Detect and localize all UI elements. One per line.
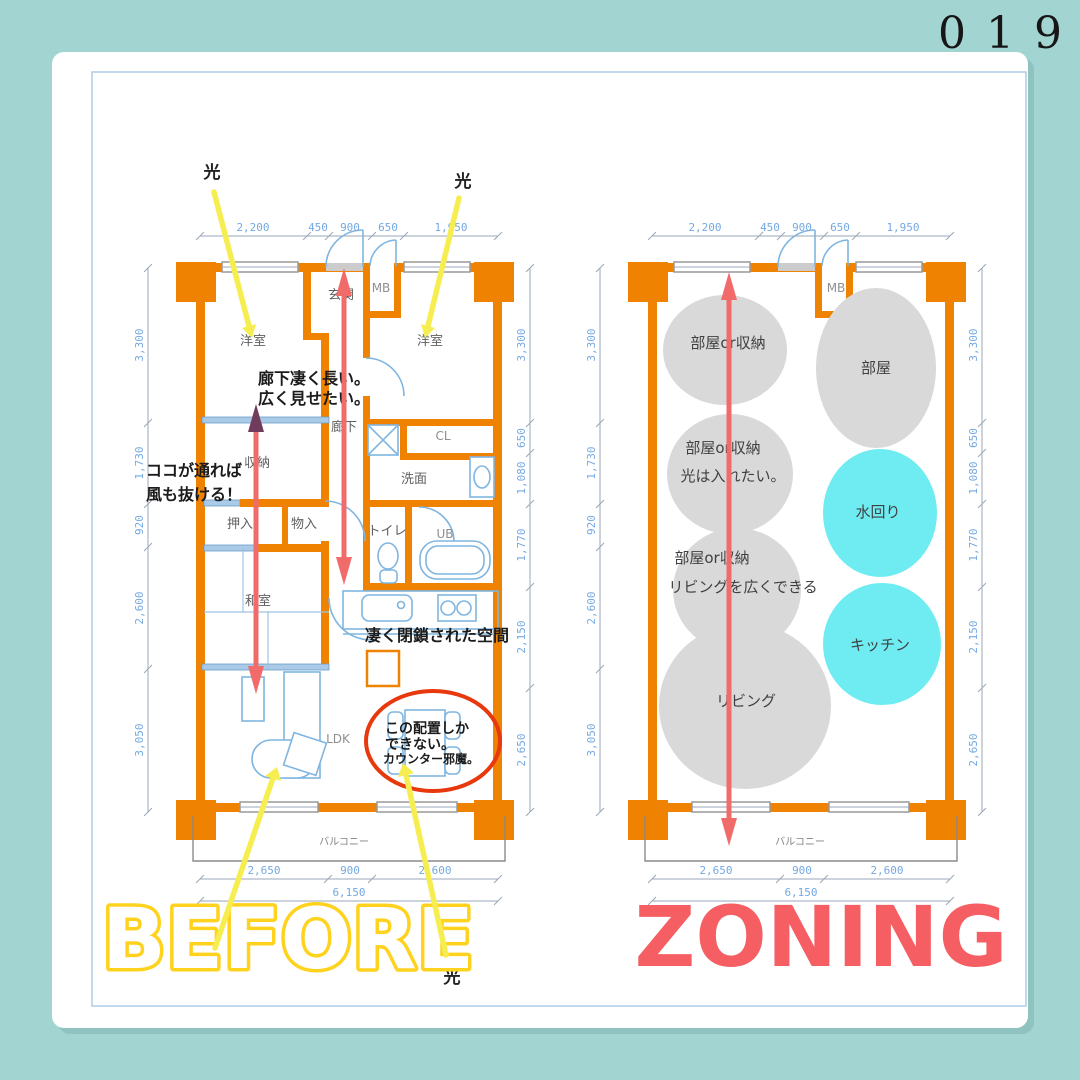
dim-label: 900 xyxy=(340,864,360,877)
dim-label: 900 xyxy=(792,864,812,877)
dim-label: 2,650 xyxy=(699,864,732,877)
dim-label: 920 xyxy=(585,515,598,535)
room-label-yoshitsu-right: 洋室 xyxy=(417,333,443,349)
dim-label: 3,300 xyxy=(585,328,598,361)
dim-label: 1,730 xyxy=(133,446,146,479)
note-layout-3: カウンター邪魔。 xyxy=(383,751,479,766)
room-label-cl: CL xyxy=(435,429,450,443)
title-before: BEFORE xyxy=(102,890,474,988)
dim-label: 2,650 xyxy=(967,733,980,766)
dim-label: 3,300 xyxy=(133,328,146,361)
dim-label: 2,650 xyxy=(515,733,528,766)
zone-label-z6: キッチン xyxy=(850,636,910,654)
note-layout-2: できない。 xyxy=(385,737,455,753)
note-layout-1: この配置しか xyxy=(385,720,469,737)
room-label-yoshitsu-left: 洋室 xyxy=(240,333,266,349)
zone-label-z3-line1: 部屋or収納 xyxy=(685,439,760,457)
room-label-mb-zoning: MB xyxy=(827,281,846,295)
dim-label: 2,200 xyxy=(688,221,721,234)
dim-label: 650 xyxy=(515,428,528,448)
dim-label: 450 xyxy=(760,221,780,234)
dim-label: 1,950 xyxy=(886,221,919,234)
zone-label-z4: 水回り xyxy=(855,503,900,521)
dim-label: 2,600 xyxy=(870,864,903,877)
room-label-balcony: バルコニー xyxy=(319,836,369,848)
dim-label: 3,300 xyxy=(967,328,980,361)
floorplan-poster: 019 xyxy=(0,0,1080,1080)
room-label-mb: MB xyxy=(372,281,391,295)
room-label-senmen: 洗面 xyxy=(401,472,427,487)
dim-label: 1,770 xyxy=(515,528,528,561)
room-label-mononyu: 物入 xyxy=(291,517,317,532)
dim-label: 650 xyxy=(967,428,980,448)
dim-label: 3,050 xyxy=(133,723,146,756)
room-label-ub: UB xyxy=(436,527,453,541)
title-zoning: ZONING xyxy=(634,888,1007,986)
note-corridor-2: 広く見せたい。 xyxy=(258,389,370,408)
dim-label: 900 xyxy=(340,221,360,234)
note-corridor-1: 廊下凄く長い。 xyxy=(258,369,370,388)
dim-label: 2,200 xyxy=(236,221,269,234)
note-closed-space: 凄く閉鎖された空間 xyxy=(365,626,509,645)
zone-label-z5-line1: 部屋or収納 xyxy=(674,549,749,567)
dim-label: 650 xyxy=(378,221,398,234)
room-label-oshiire: 押入 xyxy=(227,517,253,532)
room-label-ldk: LDK xyxy=(326,732,351,746)
poster-page: { "page": {"number": "019"}, "titles": {… xyxy=(0,0,1080,1080)
room-label-toire: トイレ xyxy=(367,524,406,539)
dim-label: 2,650 xyxy=(247,864,280,877)
dim-label: 2,150 xyxy=(967,620,980,653)
zone-label-z3-line2: 光は入れたい。 xyxy=(680,467,785,485)
note-wind-1: ココが通れば xyxy=(146,461,242,480)
dim-label: 2,150 xyxy=(515,620,528,653)
dim-label: 3,300 xyxy=(515,328,528,361)
note-wind-2: 風も抜ける！ xyxy=(146,485,242,504)
page-number: 019 xyxy=(938,8,1080,59)
dim-label: 1,080 xyxy=(515,461,528,494)
dim-label: 450 xyxy=(308,221,328,234)
dim-label: 1,770 xyxy=(967,528,980,561)
dim-label: 2,600 xyxy=(585,591,598,624)
dim-label: 1,080 xyxy=(967,461,980,494)
room-label-balcony-zoning: バルコニー xyxy=(775,836,825,848)
light-label-top-right: 光 xyxy=(454,171,472,192)
zone-label-z2: 部屋 xyxy=(861,359,891,377)
zone-label-z5-line2: リビングを広くできる xyxy=(668,578,817,596)
dim-label: 920 xyxy=(133,515,146,535)
dim-label: 900 xyxy=(792,221,812,234)
light-label-top-left: 光 xyxy=(203,162,221,183)
zone-label-z7: リビング xyxy=(716,692,776,710)
dim-label: 650 xyxy=(830,221,850,234)
dim-label: 1,730 xyxy=(585,446,598,479)
dim-label: 3,050 xyxy=(585,723,598,756)
dim-label: 2,600 xyxy=(133,591,146,624)
